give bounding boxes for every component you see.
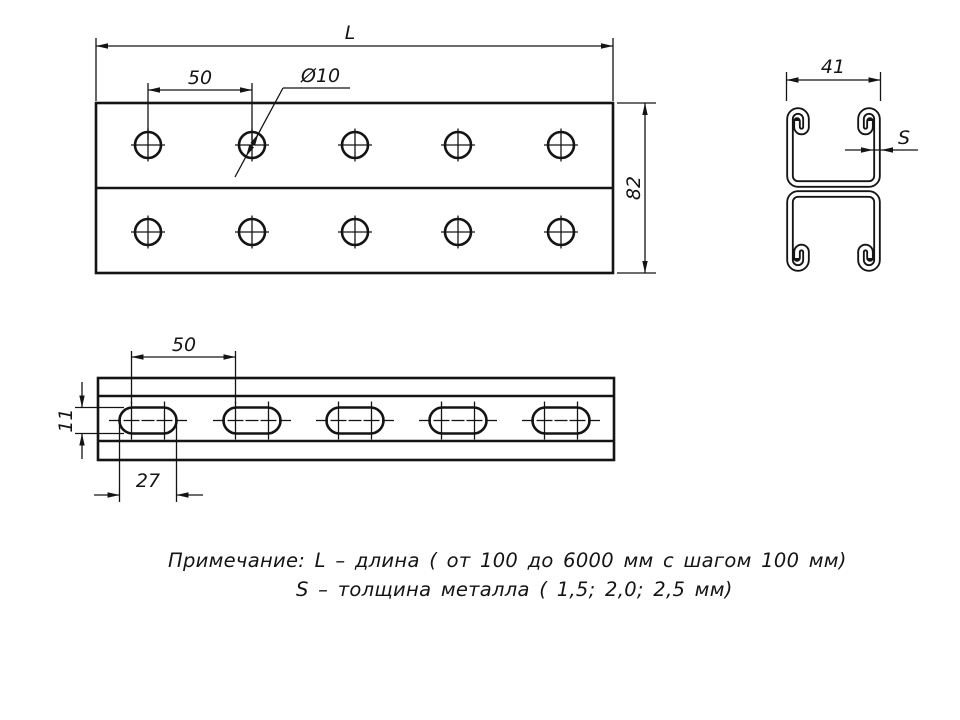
arrow [787,77,799,82]
arrow [108,492,120,497]
arrow [96,43,108,48]
channel-top-profile [790,111,877,184]
slot-marker [213,402,291,440]
hole-marker [544,216,578,249]
arrow [869,77,881,82]
slot-marker [419,402,497,440]
arrow [79,434,84,446]
dim-slot-pitch-label: 50 [172,334,196,356]
arrow [240,87,252,92]
note-line-2: S – толщина металла ( 1,5; 2,0; 2,5 мм) [296,578,733,601]
dim-slot-width-label: 11 [55,408,77,432]
dim-slot-pitch: 50 [132,334,236,404]
dim-height: 82 [617,103,656,273]
dim-width: 41 [787,56,881,101]
dim-length-label: L [345,22,356,44]
arrow [79,396,84,408]
arrow [642,261,647,273]
arrow [224,354,236,359]
strut-channel-drawing: L 50 Ø10 82 [0,0,960,720]
slot-marker [522,402,600,440]
note-block: Примечание: L – длина ( от 100 до 6000 м… [168,549,847,601]
dim-length: L [96,22,613,101]
hole-marker [441,216,475,249]
drawing-sheet: L 50 Ø10 82 [0,0,960,720]
arrow [148,87,160,92]
note-line-1: Примечание: L – длина ( от 100 до 6000 м… [168,549,847,572]
arrow [642,103,647,115]
hole-marker [441,129,475,162]
dim-slot-length-label: 27 [136,470,160,492]
side-view: 50 27 11 [55,334,614,502]
dim-thickness-label: S [898,127,910,149]
arrow [132,354,144,359]
channel-bottom-profile [790,194,877,268]
slot-marker [316,402,394,440]
section-view: 41 S [787,56,919,268]
arrow [881,147,893,152]
hole-marker [544,129,578,162]
dim-height-label: 82 [623,176,645,200]
arrow [177,492,189,497]
hole-marker [338,129,372,162]
dim-hole-dia-label: Ø10 [300,65,340,87]
dim-thickness: S [845,127,918,153]
arrow [601,43,613,48]
dim-hole-pitch-label: 50 [188,67,212,89]
arrow [861,147,873,152]
leader-line [235,88,283,177]
dim-width-label: 41 [821,56,845,78]
hole-marker [338,216,372,249]
hole-marker [131,216,165,249]
hole-marker [235,216,269,249]
front-view: L 50 Ø10 82 [96,22,656,273]
